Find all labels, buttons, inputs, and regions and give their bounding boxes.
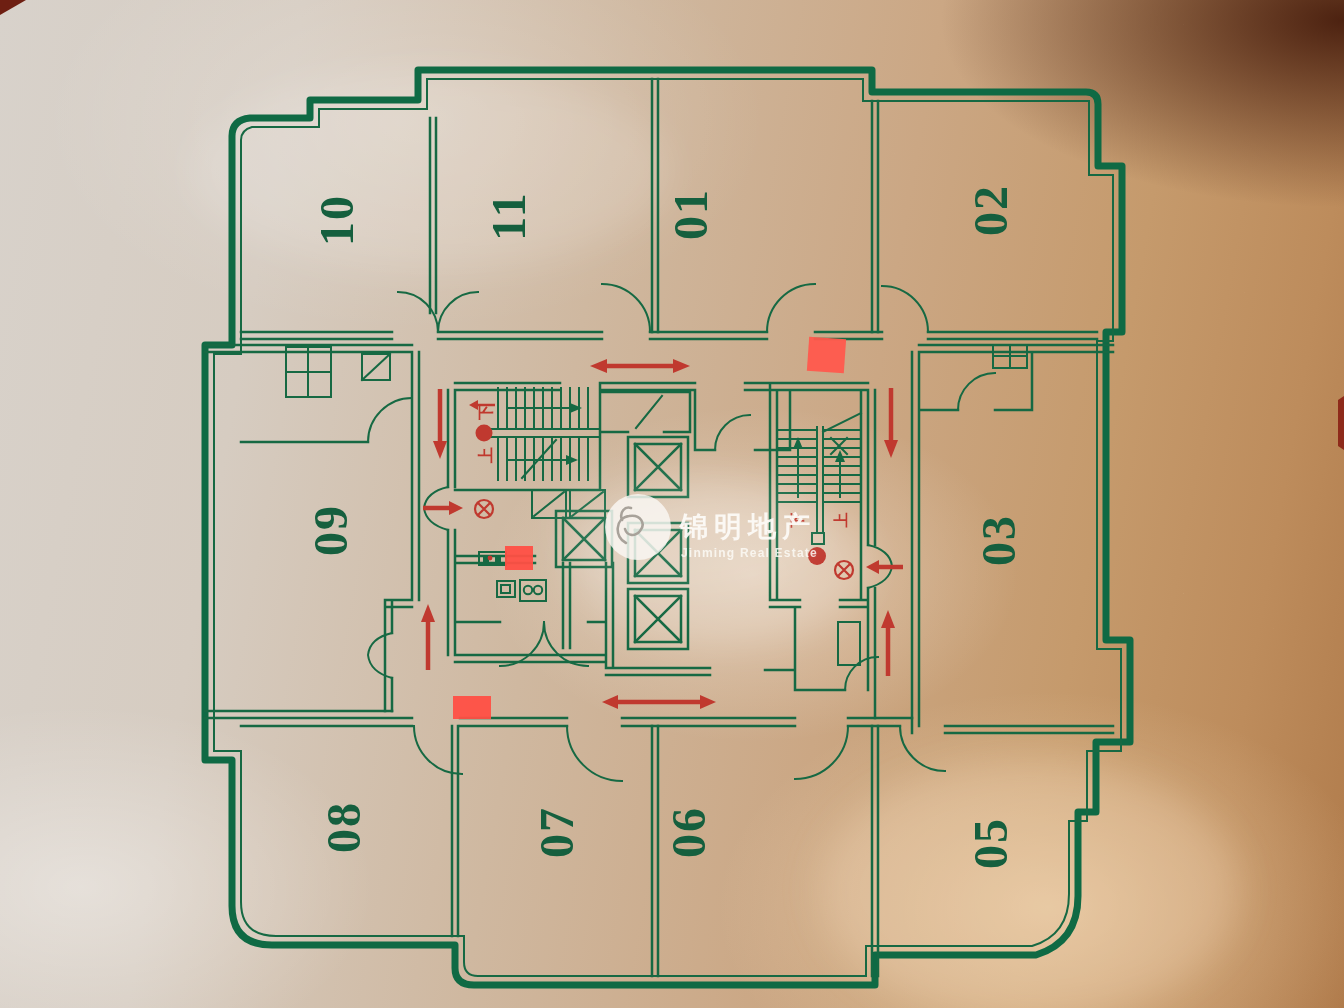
double-arrow-bottom	[602, 695, 716, 709]
arrow-up-left-corridor	[421, 604, 435, 670]
room-label-02: 02	[964, 184, 1017, 236]
stair-down-label-left: 下	[476, 404, 495, 421]
room-label-01: 01	[664, 188, 717, 240]
top-corridor-walls	[241, 332, 1097, 339]
crossed-circle-left	[475, 500, 493, 518]
room-label-03: 03	[972, 514, 1025, 566]
red-square-top-corridor	[807, 337, 846, 373]
watermark: 锦明地产 Jinming Real Estate	[555, 468, 825, 592]
double-arrow-top	[590, 359, 690, 373]
room-label-07: 07	[530, 806, 583, 858]
arrow-into-right-stair-door	[866, 560, 903, 574]
floor-plan: 下 上 下 上 10 11 01 02 09 03 08 07 06 05 锦明…	[0, 0, 1344, 1008]
watermark-logo-circle	[605, 494, 671, 560]
room-label-10: 10	[310, 194, 363, 246]
red-square-bottom-corridor	[453, 696, 491, 719]
watermark-cn-text: 锦明地产	[679, 510, 816, 543]
edge-sliver-right	[1338, 396, 1344, 450]
stair-up-label-right: 上	[832, 513, 850, 529]
room-label-06: 06	[662, 806, 715, 858]
staircase-left	[490, 388, 600, 480]
arrow-up-right-corridor	[881, 610, 895, 676]
arrow-into-left-stair-door	[423, 501, 463, 515]
room-label-05: 05	[964, 817, 1017, 869]
arrow-down-left-corridor	[433, 389, 447, 459]
room-label-09: 09	[304, 504, 357, 556]
plaque-photo: 下 上 下 上 10 11 01 02 09 03 08 07 06 05 锦明…	[0, 0, 1344, 1008]
room-label-08: 08	[317, 801, 370, 853]
arrow-down-right-corridor	[884, 388, 898, 458]
red-square-hydrant	[505, 546, 533, 570]
corner-sliver-top-left	[0, 0, 26, 15]
location-dot-left-stair	[476, 425, 493, 442]
watermark-en-text: Jinming Real Estate	[681, 546, 818, 560]
toilet-fixtures	[497, 580, 546, 601]
stair-up-label-left: 上	[476, 447, 495, 464]
room-label-11: 11	[482, 191, 535, 240]
